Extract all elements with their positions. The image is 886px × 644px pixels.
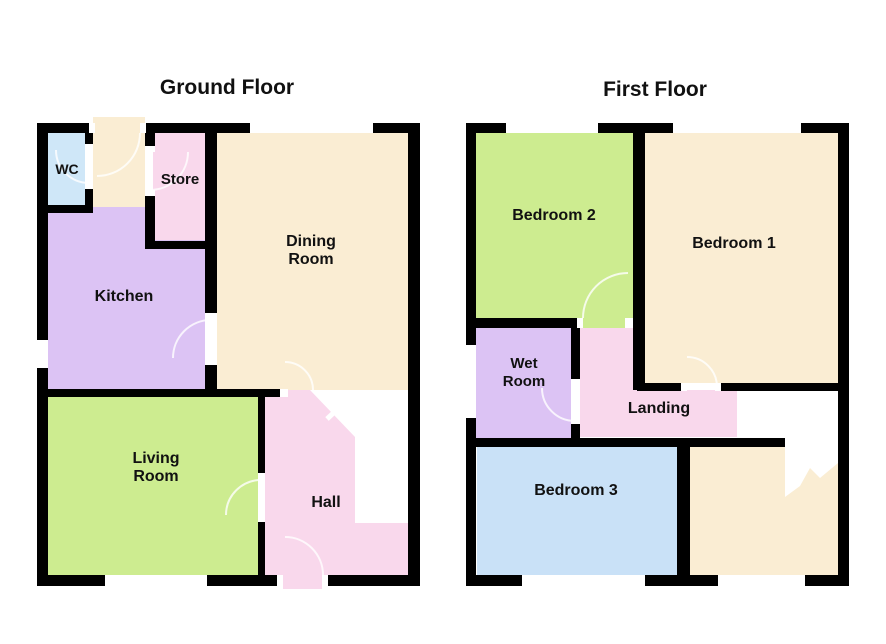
wall: [466, 438, 785, 447]
floorplan-page: WCStoreDiningRoomKitchenLivingRoomHallGr…: [0, 0, 886, 644]
wall: [37, 123, 48, 340]
door-jamb: [681, 383, 687, 391]
wall: [571, 328, 580, 385]
floor-title: Ground Floor: [160, 76, 294, 99]
door-jamb: [277, 575, 283, 586]
room-label: Bedroom 3: [534, 482, 618, 499]
wall: [466, 575, 522, 586]
wall: [838, 123, 849, 586]
floor-title: First Floor: [603, 78, 707, 101]
wall: [466, 123, 476, 345]
door-jamb: [577, 318, 583, 328]
room-hall-door-threshold: [283, 575, 322, 589]
wall: [207, 575, 283, 586]
room-label: Kitchen: [95, 288, 154, 305]
room-label: Store: [161, 171, 199, 188]
door-jamb: [140, 123, 146, 133]
wall: [145, 241, 207, 249]
room-label: Landing: [628, 400, 690, 417]
door-jamb: [205, 358, 217, 365]
first-floor: Bedroom 2Bedroom 1WetRoomLandingBedroom …: [466, 78, 849, 586]
room-label: WC: [55, 161, 78, 177]
door-jamb: [322, 575, 328, 586]
room-entrance-porch: [93, 117, 145, 207]
door-jamb: [89, 123, 95, 133]
door-jamb: [258, 515, 265, 522]
wall: [258, 515, 265, 575]
wall: [633, 123, 645, 390]
ground-floor: WCStoreDiningRoomKitchenLivingRoomHallGr…: [37, 76, 420, 589]
wall: [48, 205, 93, 213]
wall: [466, 318, 578, 328]
wall: [637, 383, 687, 391]
room-label: Bedroom 2: [512, 207, 596, 224]
door-jamb: [258, 473, 265, 480]
wall: [48, 389, 280, 397]
wall: [677, 447, 690, 575]
wall: [205, 123, 217, 320]
floorplan-canvas: WCStoreDiningRoomKitchenLivingRoomHallGr…: [0, 0, 886, 644]
wall: [408, 123, 420, 586]
room-label: Bedroom 1: [692, 235, 776, 252]
door-jamb: [85, 144, 93, 150]
wall: [645, 575, 718, 586]
room-bedroom-2-door-threshold: [583, 318, 625, 328]
wall: [145, 190, 155, 249]
wall: [37, 575, 105, 586]
room-living-room: [48, 397, 258, 575]
wall: [140, 123, 250, 133]
wall: [37, 368, 48, 586]
room-label: DiningRoom: [286, 233, 336, 268]
door-jamb: [205, 313, 217, 320]
wall: [258, 397, 265, 480]
wall: [805, 575, 849, 586]
room-bedroom-2: [476, 133, 633, 318]
room-bedroom-3: [477, 447, 677, 575]
door-jamb: [571, 379, 580, 385]
door-jamb: [625, 318, 632, 328]
door-jamb: [145, 146, 155, 152]
wall: [322, 575, 420, 586]
room-label: LivingRoom: [132, 450, 179, 485]
room-bedroom-1: [645, 133, 838, 383]
door-jamb: [280, 389, 288, 397]
wall: [715, 383, 849, 391]
room-label: Hall: [311, 494, 340, 511]
